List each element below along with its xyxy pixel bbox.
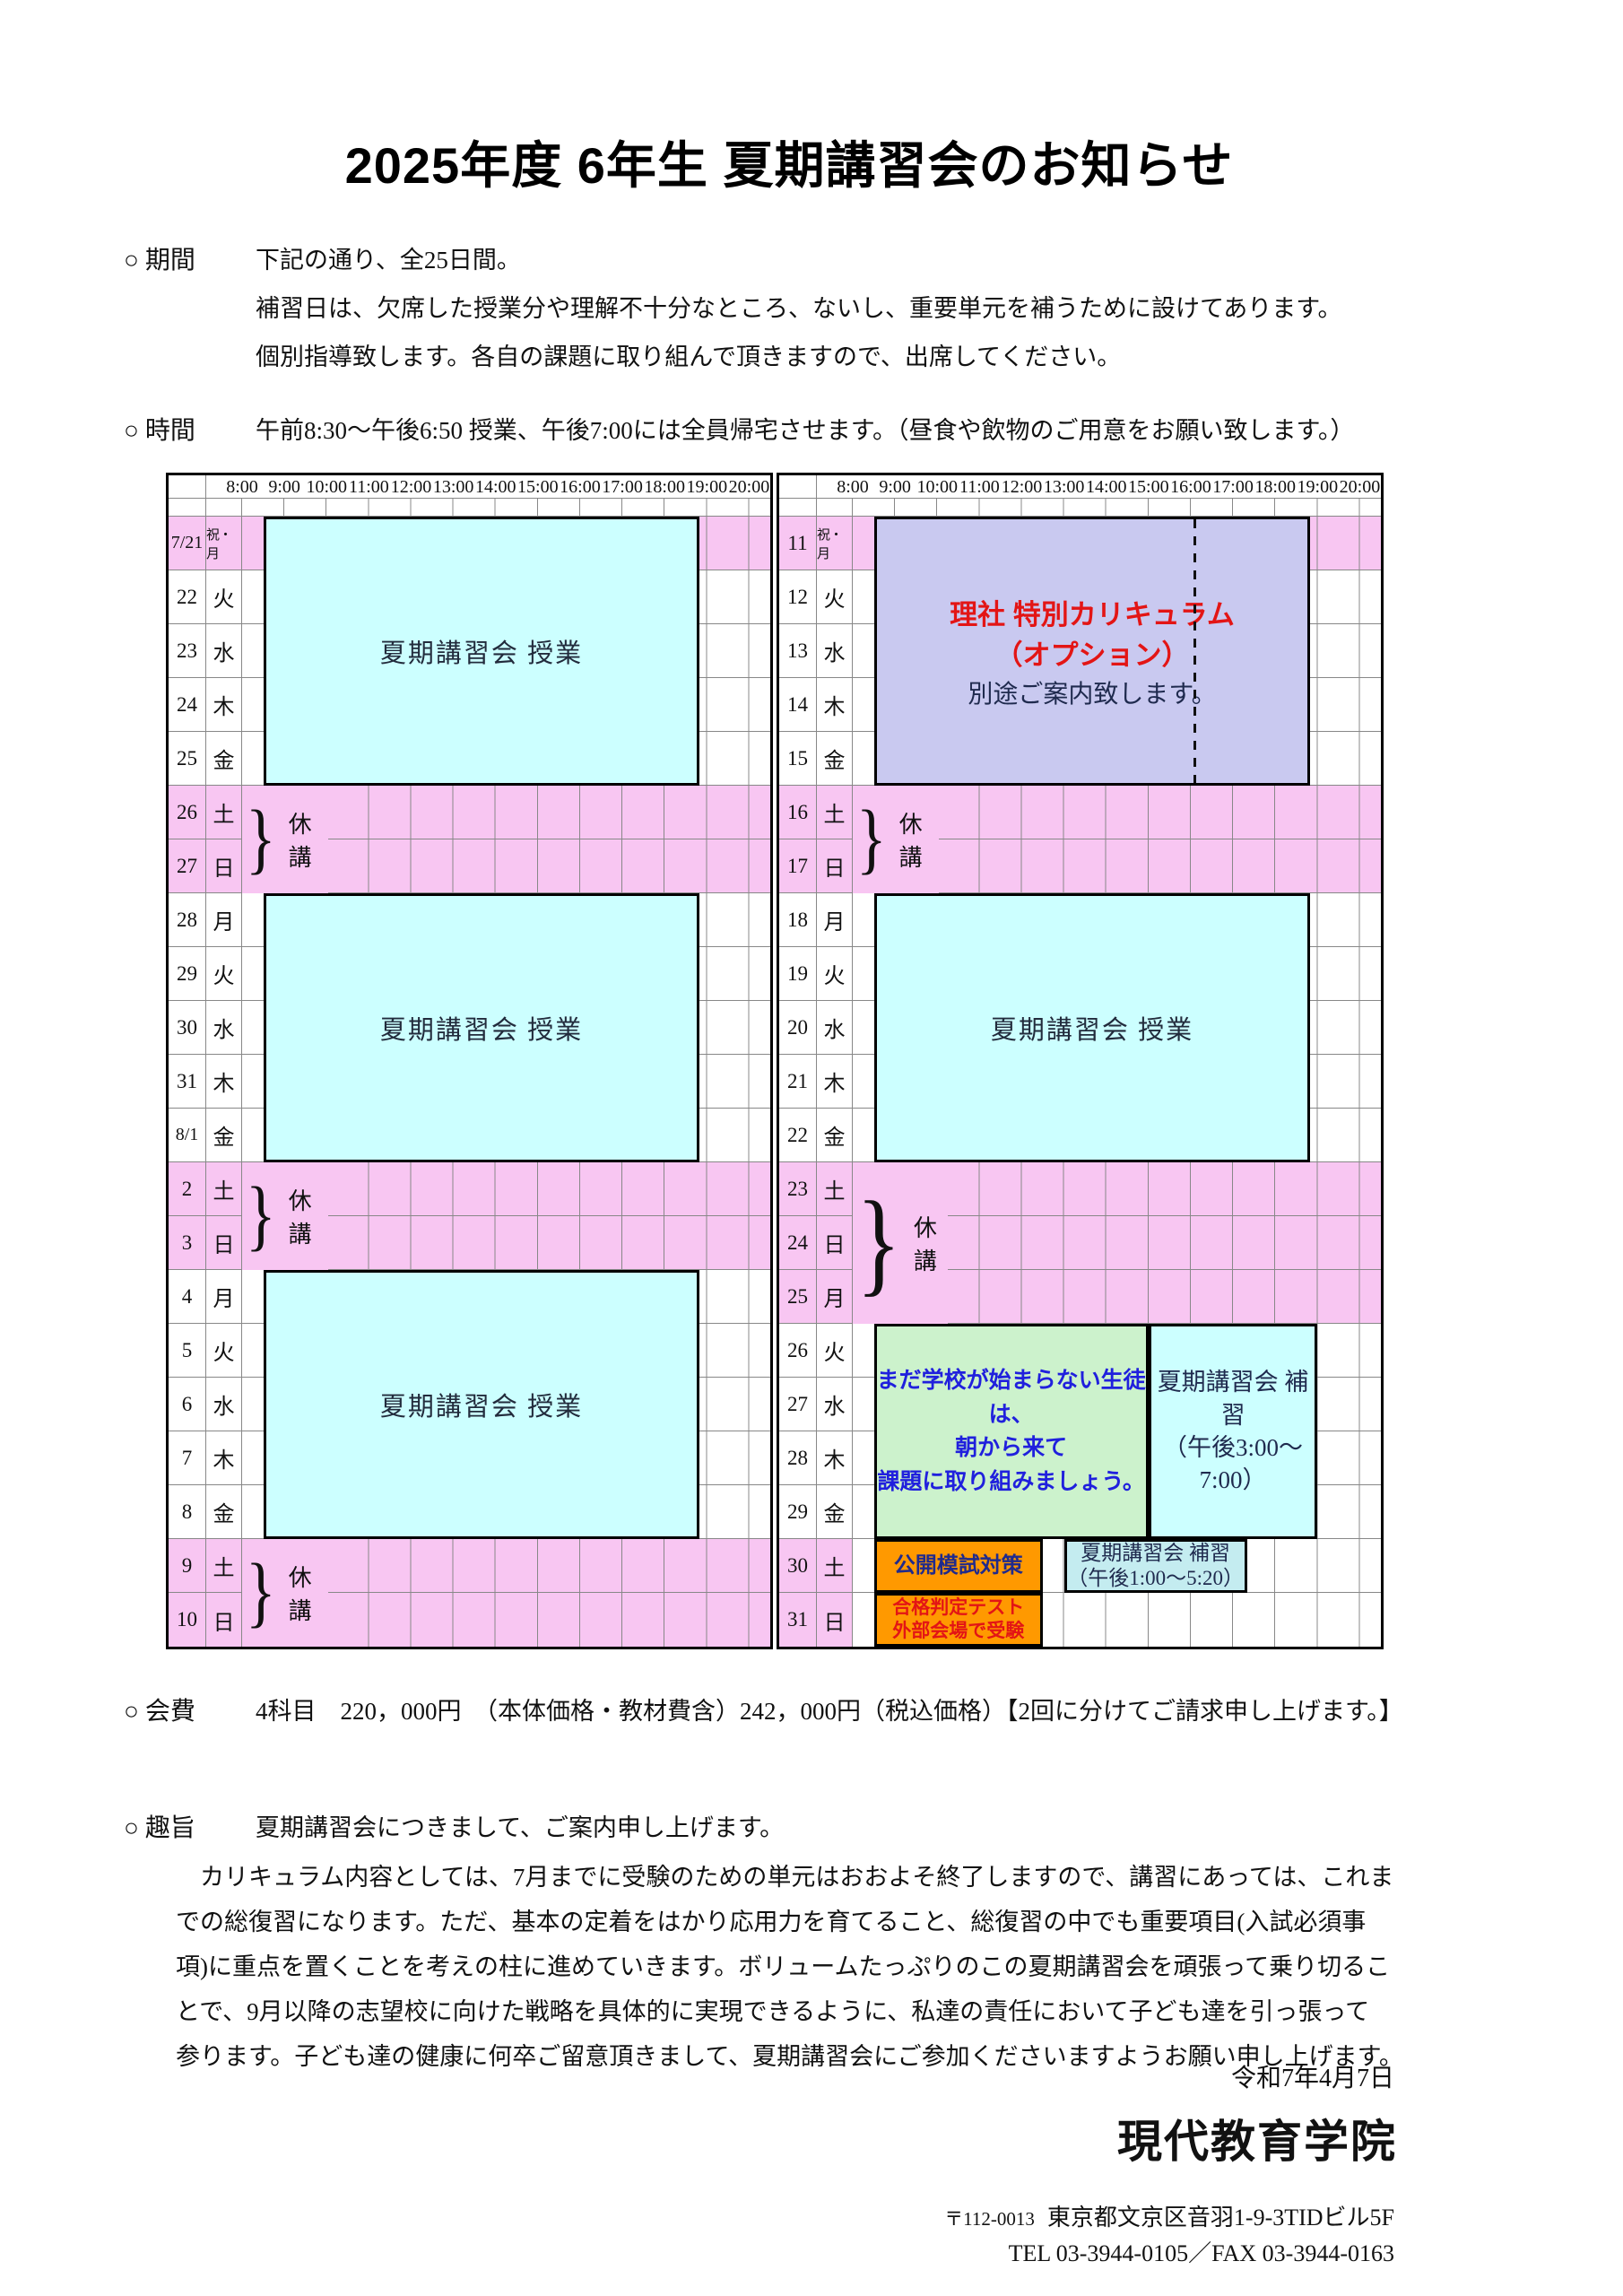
kyuko-label: 休講: [289, 806, 328, 873]
class-block: 夏期講習会 授業: [264, 517, 700, 786]
self-study-block: まだ学校が始まらない生徒 は、 朝から来て 課題に取り組みましょう。: [874, 1324, 1149, 1539]
kikan-line2: 補習日は、欠席した授業分や理解不十分なところ、ないし、重要単元を補うために設けて…: [256, 289, 1342, 324]
time-label: 13:00: [1044, 475, 1085, 498]
day-cell: 土: [817, 786, 853, 839]
day-cell: 日: [817, 1216, 853, 1269]
tick-row: [779, 499, 1381, 517]
date-cell: 15: [779, 732, 817, 785]
kyuko-cell: }休講: [242, 1162, 328, 1270]
date-cell: 31: [169, 1055, 206, 1108]
date-cell: 14: [779, 678, 817, 731]
time-label: 17:00: [602, 475, 643, 498]
date-cell: 28: [169, 893, 206, 946]
shushi-paragraph: カリキュラム内容としては、7月までに受験のための単元はおおよそ終了しますので、講…: [176, 1855, 1503, 2079]
day-cell: 木: [206, 1431, 242, 1484]
time-label: 12:00: [1002, 475, 1043, 498]
date-cell: 27: [779, 1378, 817, 1431]
day-cell: 月: [817, 1270, 853, 1323]
time-label: 16:00: [560, 475, 601, 498]
footer-date: 令和7年4月7日: [1231, 2058, 1394, 2094]
kyuko-brace-icon: }: [246, 1553, 276, 1632]
shushi-intro: 夏期講習会につきまして、ご案内申し上げます。: [256, 1808, 784, 1843]
class-block: 夏期講習会 授業: [264, 1270, 700, 1539]
day-cell: 金: [817, 1109, 853, 1161]
date-cell: 22: [779, 1109, 817, 1161]
date-cell: 5: [169, 1324, 206, 1377]
time-label: 14:00: [475, 475, 516, 498]
date-cell: 3: [169, 1216, 206, 1269]
day-cell: 土: [206, 786, 242, 839]
day-cell: 金: [206, 1109, 242, 1161]
date-cell: 25: [779, 1270, 817, 1323]
time-label: 8:00: [226, 475, 258, 498]
date-cell: 28: [779, 1431, 817, 1484]
day-cell: 木: [817, 678, 853, 731]
document-page: 2025年度 6年生 夏期講習会のお知らせ ○ 期間 下記の通り、全25日間。 …: [0, 0, 1623, 2296]
date-cell: 21: [779, 1055, 817, 1108]
date-cell: 29: [779, 1485, 817, 1538]
supplementary-class-block: 夏期講習会 補習 （午後1:00～5:20）: [1064, 1539, 1247, 1593]
day-cell: 日: [817, 1593, 853, 1647]
schedule-table-july: 8:009:0010:0011:0012:0013:0014:0015:0016…: [166, 473, 773, 1649]
time-label: 9:00: [268, 475, 300, 498]
time-label-row: 8:009:0010:0011:0012:0013:0014:0015:0016…: [169, 475, 770, 499]
page-title: 2025年度 6年生 夏期講習会のお知らせ: [0, 126, 1578, 198]
section-label-kikan: ○ 期間: [124, 240, 195, 276]
address-text: 東京都文京区音羽1-9-3TIDビル5F: [1047, 2205, 1394, 2231]
time-label: 10:00: [916, 475, 958, 498]
day-cell: 日: [206, 1593, 242, 1647]
tick-date-cell: [779, 499, 817, 516]
day-cell: 火: [817, 947, 853, 1000]
header-date-cell: [779, 475, 817, 498]
date-cell: 11: [779, 517, 817, 570]
date-cell: 26: [169, 786, 206, 839]
date-cell: 24: [779, 1216, 817, 1269]
time-label: 11:00: [349, 475, 389, 498]
time-label: 13:00: [433, 475, 474, 498]
tick-row: [169, 499, 770, 517]
time-label: 10:00: [306, 475, 347, 498]
time-label: 11:00: [959, 475, 1000, 498]
day-cell: 日: [206, 839, 242, 892]
mock-exam-block: 公開模試対策: [874, 1539, 1043, 1593]
time-label: 19:00: [687, 475, 728, 498]
date-cell: 16: [779, 786, 817, 839]
date-cell: 6: [169, 1378, 206, 1431]
day-cell: 木: [817, 1055, 853, 1108]
kyuko-cell: }休講: [242, 1539, 328, 1647]
header-date-cell: [169, 475, 206, 498]
time-label: 17:00: [1212, 475, 1254, 498]
tick-strip: [242, 499, 770, 516]
date-cell: 19: [779, 947, 817, 1000]
kikan-line1: 下記の通り、全25日間。: [256, 240, 521, 275]
kyuko-brace-icon: }: [246, 800, 276, 879]
date-cell: 4: [169, 1270, 206, 1323]
option-curriculum-block: 理社 特別カリキュラム（オプション）別途ご案内致します。: [874, 517, 1311, 786]
time-label: 16:00: [1170, 475, 1211, 498]
dashed-divider: [1193, 519, 1196, 783]
date-cell: 24: [169, 678, 206, 731]
date-cell: 7: [169, 1431, 206, 1484]
option-subtitle: （オプション）: [994, 632, 1189, 673]
time-label: 18:00: [644, 475, 685, 498]
day-cell: 水: [817, 624, 853, 677]
judgement-test-block: 合格判定テスト 外部会場で受験: [874, 1593, 1043, 1647]
date-cell: 12: [779, 570, 817, 623]
tick-day-cell: [206, 499, 242, 516]
day-cell: 土: [206, 1162, 242, 1215]
time-label: 18:00: [1254, 475, 1296, 498]
kyuko-label: 休講: [289, 1183, 328, 1249]
time-label: 12:00: [391, 475, 432, 498]
schedule-table-august: 8:009:0010:0011:0012:0013:0014:0015:0016…: [777, 473, 1384, 1649]
section-label-jikan: ○ 時間: [124, 411, 195, 447]
time-label-row: 8:009:0010:0011:0012:0013:0014:0015:0016…: [779, 475, 1381, 499]
time-label: 8:00: [837, 475, 869, 498]
section-label-kaihi: ○ 会費: [124, 1692, 195, 1727]
day-cell: 水: [206, 624, 242, 677]
day-cell: 水: [817, 1378, 853, 1431]
day-cell: 日: [206, 1216, 242, 1269]
kyuko-label: 休講: [914, 1210, 948, 1276]
day-cell: 木: [817, 1431, 853, 1484]
date-cell: 25: [169, 732, 206, 785]
time-label: 15:00: [517, 475, 559, 498]
date-cell: 10: [169, 1593, 206, 1647]
section-label-shushi: ○ 趣旨: [124, 1808, 195, 1844]
day-cell: 祝・月: [206, 517, 242, 570]
table-inner: 8:009:0010:0011:0012:0013:0014:0015:0016…: [169, 475, 770, 1647]
date-cell: 30: [169, 1001, 206, 1054]
time-label: 14:00: [1086, 475, 1127, 498]
time-label: 19:00: [1298, 475, 1339, 498]
kyuko-brace-icon: }: [246, 1177, 276, 1256]
day-cell: 金: [817, 1485, 853, 1538]
date-cell: 20: [779, 1001, 817, 1054]
day-cell: 火: [817, 570, 853, 623]
day-cell: 火: [206, 947, 242, 1000]
day-cell: 金: [206, 1485, 242, 1538]
date-cell: 26: [779, 1324, 817, 1377]
kaihi-body: 4科目 220，000円 （本体価格・教材費含）242，000円（税込価格）【2…: [256, 1692, 1403, 1726]
date-cell: 8/1: [169, 1109, 206, 1161]
day-cell: 土: [817, 1162, 853, 1215]
postal-code: 〒112-0013: [944, 2208, 1035, 2230]
kyuko-cell: }休講: [853, 786, 939, 893]
kyuko-brace-icon: }: [856, 800, 887, 879]
table-inner: 8:009:0010:0011:0012:0013:0014:0015:0016…: [779, 475, 1381, 1647]
day-cell: 水: [817, 1001, 853, 1054]
kyuko-label: 休講: [899, 806, 939, 873]
school-address: 〒112-0013東京都文京区音羽1-9-3TIDビル5F: [944, 2199, 1394, 2232]
day-cell: 金: [817, 732, 853, 785]
date-cell: 29: [169, 947, 206, 1000]
date-cell: 13: [779, 624, 817, 677]
time-label: 9:00: [879, 475, 911, 498]
date-cell: 7/21: [169, 517, 206, 570]
day-cell: 火: [206, 570, 242, 623]
date-cell: 23: [779, 1162, 817, 1215]
day-cell: 火: [817, 1324, 853, 1377]
date-cell: 27: [169, 839, 206, 892]
tick-day-cell: [817, 499, 853, 516]
option-title: 理社 特別カリキュラム: [950, 592, 1235, 632]
class-block: 夏期講習会 授業: [874, 893, 1311, 1162]
school-name: 現代教育学院: [1117, 2106, 1397, 2170]
day-cell: 月: [206, 893, 242, 946]
day-cell: 土: [206, 1539, 242, 1592]
day-cell: 月: [817, 893, 853, 946]
kikan-line3: 個別指導致します。各自の課題に取り組んで頂きますので、出席してください。: [256, 337, 1121, 372]
time-label: 15:00: [1128, 475, 1169, 498]
day-cell: 月: [206, 1270, 242, 1323]
tick-date-cell: [169, 499, 206, 516]
option-note: 別途ご案内致します。: [968, 674, 1216, 710]
date-cell: 23: [169, 624, 206, 677]
date-cell: 30: [779, 1539, 817, 1592]
kyuko-label: 休講: [289, 1560, 328, 1626]
date-cell: 17: [779, 839, 817, 892]
tick-strip: [853, 499, 1381, 516]
day-cell: 水: [206, 1001, 242, 1054]
day-cell: 水: [206, 1378, 242, 1431]
date-cell: 18: [779, 893, 817, 946]
date-cell: 31: [779, 1593, 817, 1647]
jikan-body: 午前8:30～午後6:50 授業、午後7:00には全員帰宅させます。（昼食や飲物…: [256, 411, 1354, 446]
day-cell: 祝・月: [817, 517, 853, 570]
time-label: 20:00: [729, 475, 770, 498]
day-cell: 木: [206, 678, 242, 731]
day-cell: 日: [817, 839, 853, 892]
day-cell: 火: [206, 1324, 242, 1377]
class-block: 夏期講習会 授業: [264, 893, 700, 1162]
kyuko-cell: }休講: [242, 786, 328, 893]
date-cell: 8: [169, 1485, 206, 1538]
school-tel-fax: TEL 03-3944-0105／FAX 03-3944-0163: [1009, 2235, 1394, 2268]
date-cell: 2: [169, 1162, 206, 1215]
kyuko-cell: }休講: [853, 1162, 948, 1324]
date-cell: 22: [169, 570, 206, 623]
kyuko-brace-icon: }: [856, 1185, 901, 1301]
table-row: 31日: [779, 1593, 1381, 1647]
day-cell: 土: [817, 1539, 853, 1592]
time-label: 20:00: [1340, 475, 1381, 498]
supplementary-class-block: 夏期講習会 補 習 （午後3:00～ 7:00）: [1149, 1324, 1317, 1539]
day-cell: 木: [206, 1055, 242, 1108]
date-cell: 9: [169, 1539, 206, 1592]
day-cell: 金: [206, 732, 242, 785]
